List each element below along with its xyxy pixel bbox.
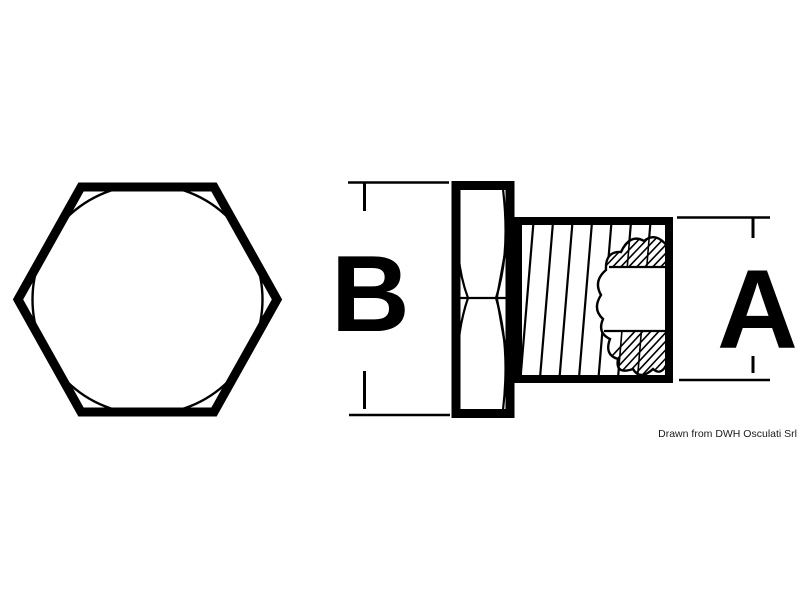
hex-head-front-view bbox=[18, 185, 277, 415]
hex-head-side-view bbox=[456, 186, 511, 414]
head-side-outline bbox=[456, 186, 510, 414]
technical-drawing-page: B A Drawn from DWH Osculati Srl bbox=[0, 0, 800, 600]
hex-plug-drawing: B A Drawn from DWH Osculati Srl bbox=[0, 0, 800, 600]
thread-line bbox=[521, 222, 534, 378]
hexagon-outline bbox=[18, 187, 277, 412]
thread-line bbox=[540, 222, 553, 378]
dimension-b: B bbox=[331, 183, 450, 416]
plug-side-view: B A bbox=[331, 183, 798, 416]
thread-line bbox=[579, 222, 592, 378]
dimension-a: A bbox=[677, 218, 798, 381]
dim-a-label: A bbox=[717, 247, 798, 372]
drawing-root-group: B A Drawn from DWH Osculati Srl bbox=[18, 183, 798, 441]
thread-line bbox=[560, 222, 573, 378]
dim-b-label: B bbox=[331, 233, 410, 355]
cutaway-cloud-outline bbox=[597, 237, 668, 375]
caption-text: Drawn from DWH Osculati Srl bbox=[658, 428, 797, 440]
anode-core-cutaway bbox=[586, 222, 702, 384]
